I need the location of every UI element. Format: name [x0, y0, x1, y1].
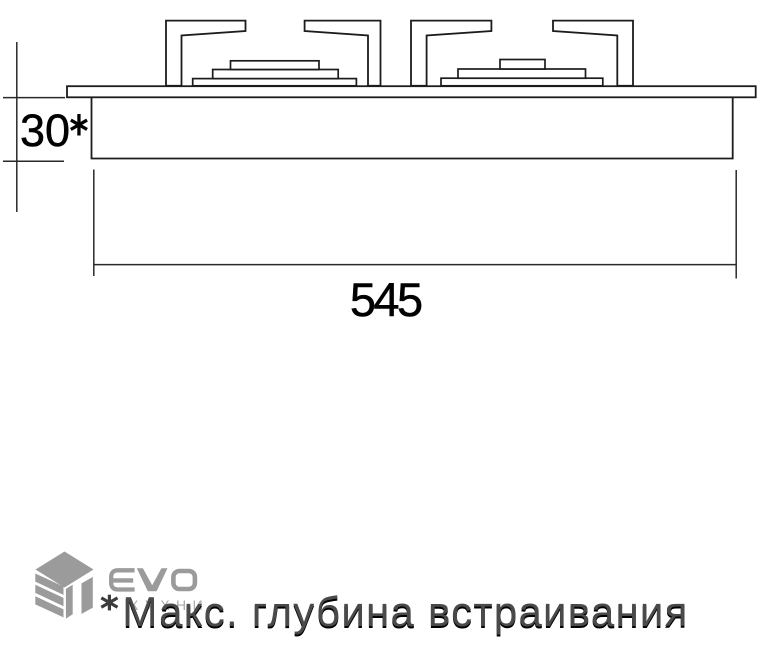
- svg-text:545: 545: [350, 273, 422, 326]
- svg-text:30: 30: [20, 105, 70, 156]
